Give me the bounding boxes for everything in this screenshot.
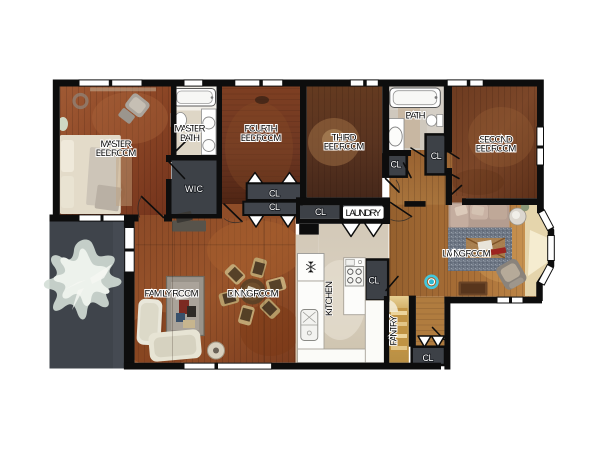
svg-text:WIC: WIC [185,184,204,194]
svg-text:PANTRY: PANTRY [389,315,400,346]
svg-text:CL: CL [269,188,280,198]
svg-text:CL: CL [315,207,326,217]
svg-text:BEDROOM: BEDROOM [96,148,137,159]
svg-text:CL: CL [369,275,380,285]
svg-text:BEDROOM: BEDROOM [324,142,365,153]
svg-text:LAUNDRY: LAUNDRY [346,208,382,219]
svg-text:BEDROOM: BEDROOM [476,144,517,155]
svg-text:BATH: BATH [406,110,426,121]
svg-text:CL: CL [431,151,442,161]
svg-text:CL: CL [391,159,402,169]
svg-text:KITCHEN: KITCHEN [324,281,335,316]
svg-text:DINING ROOM: DINING ROOM [228,289,279,300]
svg-text:FAMILY ROOM: FAMILY ROOM [145,289,199,300]
svg-text:CL: CL [269,202,280,212]
svg-text:CL: CL [423,353,434,363]
svg-text:BATH: BATH [180,133,200,144]
svg-text:BEDROOM: BEDROOM [241,133,282,144]
svg-text:LIVING ROOM: LIVING ROOM [443,249,491,260]
